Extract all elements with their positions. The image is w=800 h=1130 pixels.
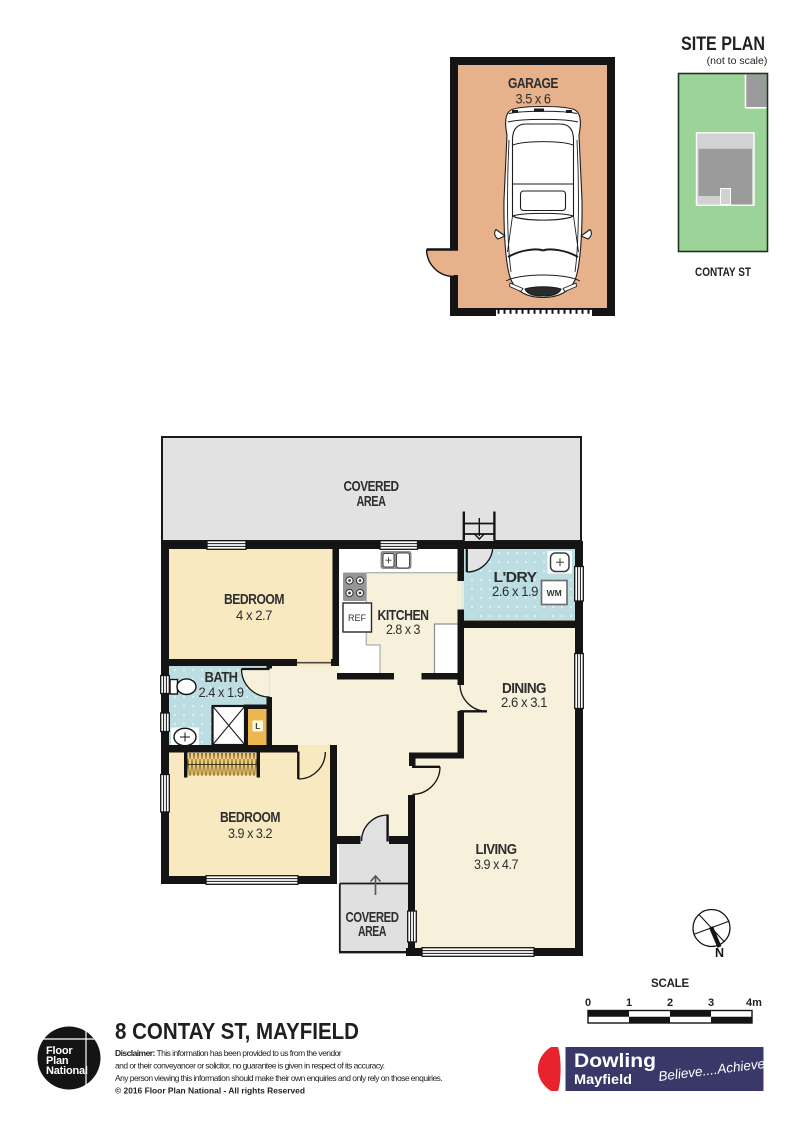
- svg-text:3: 3: [708, 997, 714, 1009]
- svg-text:Any person viewing this inform: Any person viewing this information shou…: [115, 1073, 442, 1083]
- svg-text:BEDROOM: BEDROOM: [224, 591, 284, 608]
- svg-text:and or their conveyancer or so: and or their conveyancer or solicitor, n…: [115, 1061, 385, 1071]
- svg-text:REF: REF: [348, 613, 367, 623]
- svg-text:AREA: AREA: [358, 923, 387, 940]
- svg-text:Disclaimer: This information h: Disclaimer: This information has been pr…: [115, 1048, 342, 1058]
- svg-text:8 CONTAY ST, MAYFIELD: 8 CONTAY ST, MAYFIELD: [115, 1018, 359, 1044]
- svg-text:3.9 x 4.7: 3.9 x 4.7: [474, 857, 518, 872]
- svg-text:2.6 x 3.1: 2.6 x 3.1: [501, 695, 547, 710]
- svg-text:2: 2: [667, 997, 673, 1009]
- svg-text:2.8 x 3: 2.8 x 3: [386, 622, 420, 637]
- svg-text:WM: WM: [547, 588, 562, 598]
- svg-text:National: National: [46, 1065, 88, 1077]
- svg-text:N: N: [715, 946, 724, 960]
- svg-text:© 2016 Floor Plan National - A: © 2016 Floor Plan National - All rights …: [115, 1086, 305, 1096]
- svg-text:GARAGE: GARAGE: [508, 75, 558, 92]
- svg-text:BEDROOM: BEDROOM: [220, 809, 280, 826]
- svg-text:L: L: [255, 722, 260, 731]
- svg-text:1: 1: [626, 997, 632, 1009]
- svg-text:SCALE: SCALE: [651, 978, 690, 990]
- svg-text:BATH: BATH: [205, 669, 238, 686]
- svg-text:3.5 x 6: 3.5 x 6: [516, 92, 551, 107]
- svg-text:CONTAY ST: CONTAY ST: [695, 265, 752, 279]
- svg-text:0: 0: [585, 997, 591, 1009]
- svg-text:2.4 x 1.9: 2.4 x 1.9: [199, 685, 244, 700]
- svg-text:2.6 x 1.9: 2.6 x 1.9: [492, 584, 538, 599]
- svg-text:(not to scale): (not to scale): [707, 55, 768, 67]
- svg-text:4 x 2.7: 4 x 2.7: [236, 608, 272, 623]
- svg-text:SITE PLAN: SITE PLAN: [681, 33, 765, 55]
- svg-text:LIVING: LIVING: [476, 841, 517, 858]
- svg-text:Mayfield: Mayfield: [574, 1071, 632, 1087]
- svg-text:3.9 x 3.2: 3.9 x 3.2: [228, 826, 272, 841]
- svg-text:4m: 4m: [746, 997, 762, 1009]
- svg-text:AREA: AREA: [357, 493, 387, 510]
- svg-text:Dowling: Dowling: [574, 1051, 656, 1072]
